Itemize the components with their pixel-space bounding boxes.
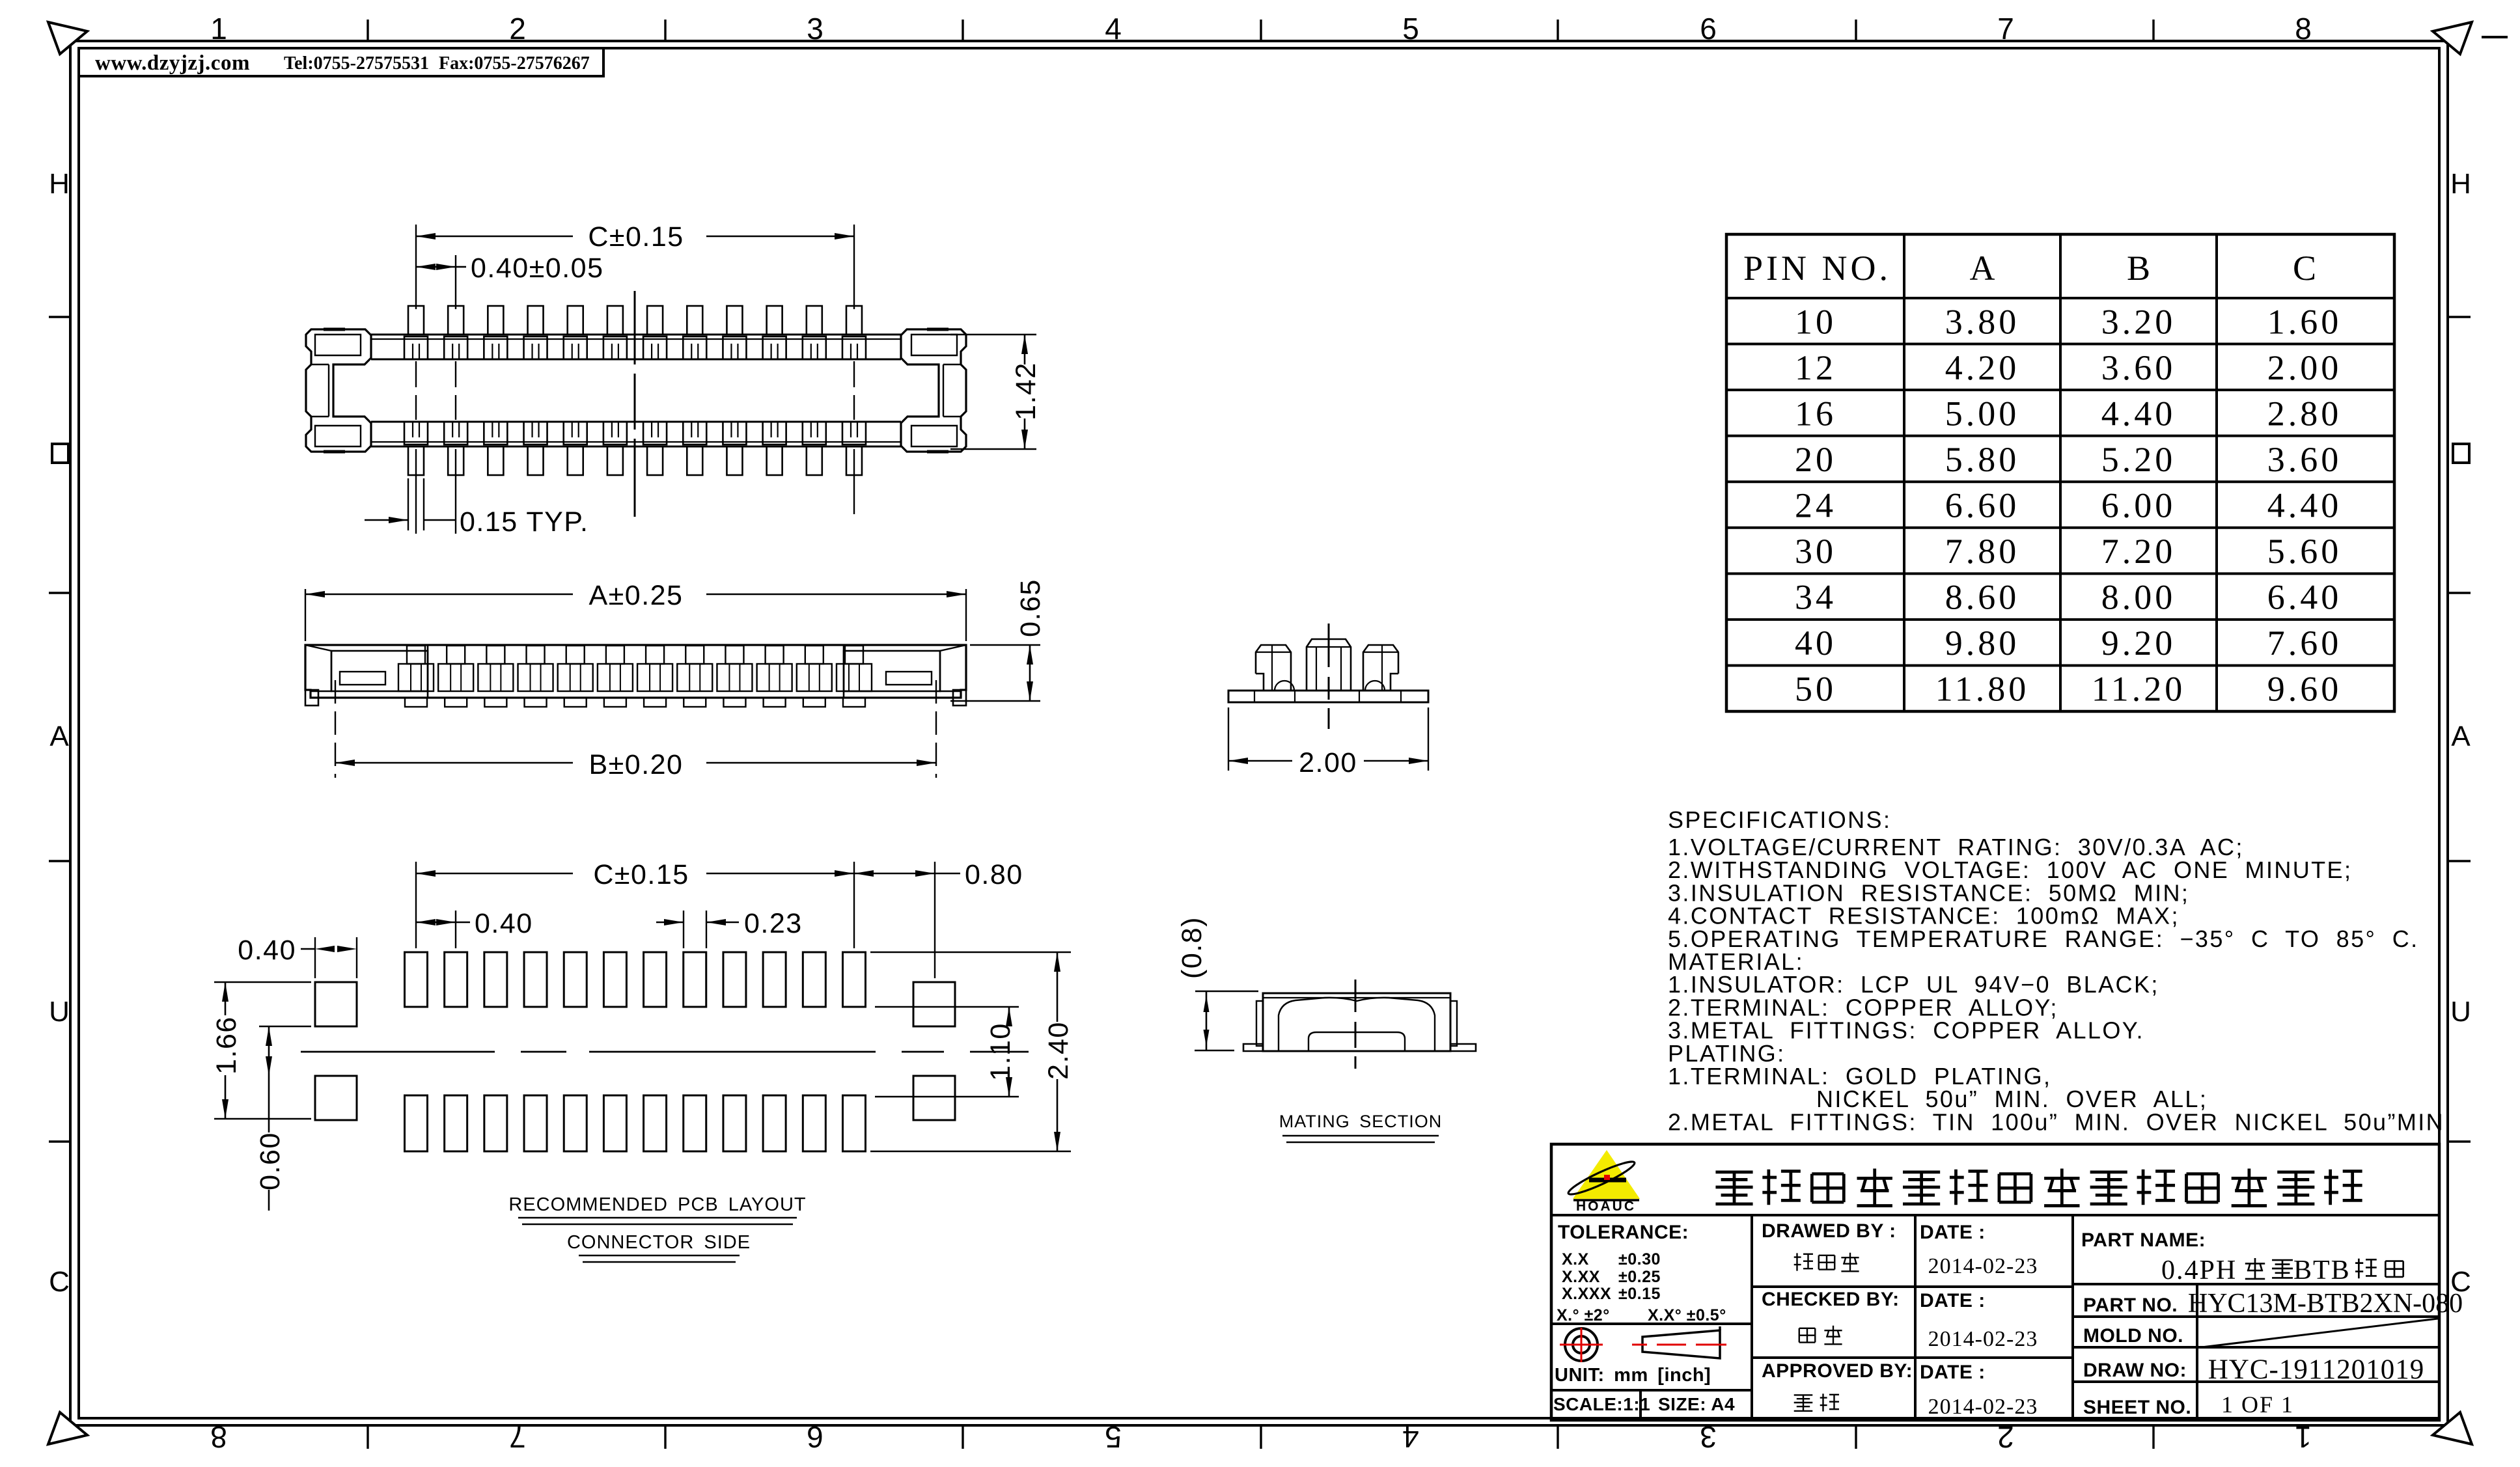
svg-text:APPROVED BY:: APPROVED BY: bbox=[1762, 1360, 1913, 1382]
svg-text:SHEET NO.: SHEET NO. bbox=[2083, 1397, 2191, 1418]
svg-text:1: 1 bbox=[2295, 1420, 2312, 1454]
svg-text:0.40: 0.40 bbox=[238, 935, 296, 966]
svg-text:X.XX: X.XX bbox=[1562, 1268, 1600, 1286]
svg-text:6.40: 6.40 bbox=[2267, 578, 2342, 617]
svg-text:DATE :: DATE : bbox=[1920, 1222, 1986, 1243]
svg-text:2014-02-23: 2014-02-23 bbox=[1928, 1395, 2038, 1419]
svg-text:X.X° ±0.5°: X.X° ±0.5° bbox=[1648, 1306, 1726, 1324]
svg-text:5.00: 5.00 bbox=[1945, 394, 2020, 433]
svg-text:SIZE: A4: SIZE: A4 bbox=[1658, 1394, 1735, 1414]
svg-text:11.20: 11.20 bbox=[2092, 670, 2186, 709]
svg-text:C: C bbox=[2293, 249, 2316, 288]
svg-text:A: A bbox=[1970, 249, 1995, 288]
svg-text:9.20: 9.20 bbox=[2101, 624, 2176, 663]
svg-text:C±0.15: C±0.15 bbox=[588, 221, 684, 253]
svg-text:A±0.25: A±0.25 bbox=[589, 580, 684, 611]
svg-text:1: 1 bbox=[210, 12, 227, 46]
svg-text:DRAW NO:: DRAW NO: bbox=[2083, 1360, 2187, 1381]
svg-text:X.XXX: X.XXX bbox=[1562, 1285, 1611, 1303]
svg-text:±0.25: ±0.25 bbox=[1618, 1268, 1661, 1286]
svg-text:B: B bbox=[2127, 249, 2150, 288]
svg-text:2: 2 bbox=[1997, 1420, 2014, 1454]
svg-text:30: 30 bbox=[1795, 532, 1836, 571]
svg-text:2014-02-23: 2014-02-23 bbox=[1928, 1254, 2038, 1278]
svg-text:6: 6 bbox=[807, 1420, 824, 1454]
svg-text:U: U bbox=[49, 996, 70, 1028]
svg-text:5.80: 5.80 bbox=[1945, 440, 2020, 479]
svg-text:Fax:0755-27576267: Fax:0755-27576267 bbox=[439, 53, 590, 74]
svg-text:7.20: 7.20 bbox=[2101, 532, 2176, 571]
svg-text:Tel:0755-27575531: Tel:0755-27575531 bbox=[284, 53, 429, 74]
svg-text:0.80: 0.80 bbox=[965, 859, 1023, 890]
svg-text:3.60: 3.60 bbox=[2267, 440, 2342, 479]
svg-text:0.60: 0.60 bbox=[255, 1132, 286, 1190]
svg-text:2.00: 2.00 bbox=[1299, 747, 1357, 778]
svg-text:0.40: 0.40 bbox=[475, 908, 533, 939]
svg-text:2: 2 bbox=[509, 12, 526, 46]
svg-text:7: 7 bbox=[509, 1420, 526, 1454]
svg-text:1.66: 1.66 bbox=[211, 1016, 242, 1075]
svg-text:8: 8 bbox=[2295, 12, 2312, 46]
svg-text:X.X: X.X bbox=[1562, 1250, 1589, 1268]
svg-text:DATE :: DATE : bbox=[1920, 1362, 1986, 1383]
svg-text:8.00: 8.00 bbox=[2101, 578, 2176, 617]
svg-text:SCALE:1:1: SCALE:1:1 bbox=[1553, 1394, 1650, 1414]
svg-text:3: 3 bbox=[807, 12, 824, 46]
svg-text:4.20: 4.20 bbox=[1945, 348, 2020, 387]
svg-text:BTB: BTB bbox=[2293, 1255, 2351, 1285]
svg-text:4: 4 bbox=[1105, 12, 1122, 46]
svg-text:5.20: 5.20 bbox=[2101, 440, 2176, 479]
svg-text:TOLERANCE:: TOLERANCE: bbox=[1558, 1222, 1689, 1243]
svg-text:2.00: 2.00 bbox=[2267, 348, 2342, 387]
svg-text:MATING SECTION: MATING SECTION bbox=[1279, 1112, 1443, 1131]
svg-text:5: 5 bbox=[1105, 1420, 1122, 1454]
svg-text:4.40: 4.40 bbox=[2101, 394, 2176, 433]
svg-text:A: A bbox=[49, 720, 69, 752]
svg-text:A: A bbox=[2451, 720, 2471, 752]
svg-text:C: C bbox=[49, 1266, 70, 1298]
svg-text:6.60: 6.60 bbox=[1945, 486, 2020, 525]
svg-text:1 OF 1: 1 OF 1 bbox=[2221, 1392, 2294, 1418]
svg-text:H: H bbox=[49, 168, 70, 200]
svg-text:7.80: 7.80 bbox=[1945, 532, 2020, 571]
svg-text:5: 5 bbox=[1402, 12, 1419, 46]
svg-text:2.80: 2.80 bbox=[2267, 394, 2342, 433]
svg-text:DRAWED BY :: DRAWED BY : bbox=[1762, 1220, 1896, 1242]
svg-text:HOAUC: HOAUC bbox=[1576, 1199, 1636, 1214]
svg-text:0.4PH: 0.4PH bbox=[2161, 1255, 2237, 1285]
svg-text:HYC13M-BTB2XN-080: HYC13M-BTB2XN-080 bbox=[2188, 1289, 2463, 1319]
svg-text:34: 34 bbox=[1795, 578, 1836, 617]
svg-text:5.60: 5.60 bbox=[2267, 532, 2342, 571]
svg-text:CHECKED BY:: CHECKED BY: bbox=[1762, 1289, 1900, 1310]
svg-text:3.60: 3.60 bbox=[2101, 348, 2176, 387]
svg-text:(0.8): (0.8) bbox=[1176, 916, 1208, 979]
svg-text:U: U bbox=[2450, 996, 2471, 1028]
svg-text:16: 16 bbox=[1795, 394, 1836, 433]
svg-text:0.23: 0.23 bbox=[744, 908, 803, 939]
svg-text:4.40: 4.40 bbox=[2267, 486, 2342, 525]
svg-text:11.80: 11.80 bbox=[1935, 670, 2030, 709]
svg-text:1.10: 1.10 bbox=[985, 1022, 1016, 1081]
svg-text:4: 4 bbox=[1402, 1420, 1419, 1454]
svg-text:2014-02-23: 2014-02-23 bbox=[1928, 1327, 2038, 1351]
svg-text:C±0.15: C±0.15 bbox=[593, 859, 689, 890]
svg-text:8.60: 8.60 bbox=[1945, 578, 2020, 617]
svg-text:7: 7 bbox=[1997, 12, 2014, 46]
svg-text:HYC-1911201019: HYC-1911201019 bbox=[2208, 1354, 2425, 1385]
svg-text:PART NAME:: PART NAME: bbox=[2081, 1229, 2206, 1251]
svg-text:0.15 TYP.: 0.15 TYP. bbox=[460, 506, 588, 538]
svg-text:0.40±0.05: 0.40±0.05 bbox=[471, 253, 603, 284]
svg-text:H: H bbox=[2450, 168, 2471, 200]
svg-text:3.20: 3.20 bbox=[2101, 302, 2176, 341]
svg-text:MOLD NO.: MOLD NO. bbox=[2083, 1325, 2183, 1347]
svg-text:1.42: 1.42 bbox=[1010, 362, 1042, 420]
svg-text:8: 8 bbox=[210, 1420, 227, 1454]
svg-text:10: 10 bbox=[1795, 302, 1836, 341]
svg-text:6: 6 bbox=[1700, 12, 1717, 46]
svg-text:±0.30: ±0.30 bbox=[1618, 1250, 1661, 1268]
svg-text:X.° ±2°: X.° ±2° bbox=[1557, 1306, 1610, 1324]
svg-text:6.00: 6.00 bbox=[2101, 486, 2176, 525]
svg-text:±0.15: ±0.15 bbox=[1618, 1285, 1661, 1303]
svg-text:B±0.20: B±0.20 bbox=[589, 749, 684, 780]
svg-text:40: 40 bbox=[1795, 624, 1836, 663]
svg-text:UNIT: mm [inch]: UNIT: mm [inch] bbox=[1555, 1365, 1711, 1386]
svg-text:20: 20 bbox=[1795, 440, 1836, 479]
svg-text:CONNECTOR SIDE: CONNECTOR SIDE bbox=[567, 1232, 751, 1253]
svg-text:2.40: 2.40 bbox=[1043, 1021, 1074, 1080]
svg-text:SPECIFICATIONS:: SPECIFICATIONS: bbox=[1668, 806, 1891, 833]
svg-text:2.METAL FITTINGS: TIN 100u” MI: 2.METAL FITTINGS: TIN 100u” MIN. OVER NI… bbox=[1668, 1108, 2452, 1135]
svg-text:9.60: 9.60 bbox=[2267, 670, 2342, 709]
svg-text:50: 50 bbox=[1795, 670, 1836, 709]
svg-text:3: 3 bbox=[1700, 1420, 1717, 1454]
svg-text:7.60: 7.60 bbox=[2267, 624, 2342, 663]
svg-text:RECOMMENDED PCB LAYOUT: RECOMMENDED PCB LAYOUT bbox=[508, 1194, 806, 1215]
svg-text:0.65: 0.65 bbox=[1015, 579, 1046, 637]
svg-text:1.60: 1.60 bbox=[2267, 302, 2342, 341]
svg-text:3.80: 3.80 bbox=[1945, 302, 2020, 341]
svg-text:PIN NO.: PIN NO. bbox=[1743, 249, 1891, 288]
svg-text:PART NO.: PART NO. bbox=[2083, 1295, 2178, 1316]
svg-text:www.dzyjzj.com: www.dzyjzj.com bbox=[95, 51, 250, 75]
svg-text:DATE :: DATE : bbox=[1920, 1290, 1986, 1311]
svg-text:9.80: 9.80 bbox=[1945, 624, 2020, 663]
svg-text:12: 12 bbox=[1795, 348, 1836, 387]
svg-text:24: 24 bbox=[1795, 486, 1836, 525]
